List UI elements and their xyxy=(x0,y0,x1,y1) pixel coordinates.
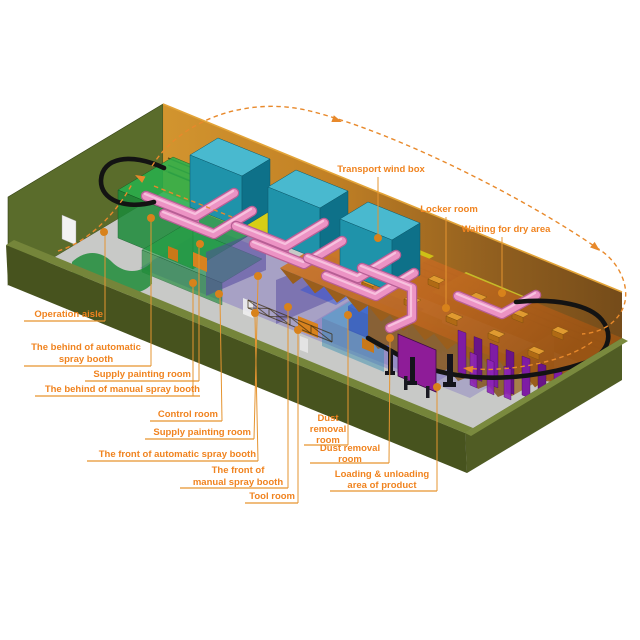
callout-dot-icon xyxy=(442,304,450,312)
callout-dot-icon xyxy=(215,290,223,298)
callout-text: Supply painting room xyxy=(93,369,191,380)
callout-text: Tool room xyxy=(249,491,295,502)
callout-text: The front of automatic spray booth xyxy=(99,449,256,460)
callout-dot-icon xyxy=(344,311,352,319)
callout-text: Control room xyxy=(158,409,218,420)
callout-dot-icon xyxy=(498,289,506,297)
callout-text: The behind of automaticspray booth xyxy=(31,342,141,365)
flow-arrow-icon xyxy=(590,242,602,254)
callout-dot-icon xyxy=(254,272,262,280)
callout-text: Supply painting room xyxy=(153,427,251,438)
callout-dot-icon xyxy=(196,240,204,248)
callout-dot-icon xyxy=(147,214,155,222)
callout-dot-icon xyxy=(284,303,292,311)
callout-dot-icon xyxy=(251,309,259,317)
callout-dot-icon xyxy=(374,234,382,242)
factory-layout-diagram: Operation aisleThe behind of automaticsp… xyxy=(0,0,640,640)
callout-text: The front ofmanual spray booth xyxy=(193,465,283,488)
callout-dot-icon xyxy=(100,228,108,236)
callout-dot-icon xyxy=(294,326,302,334)
callout-text: Operation aisle xyxy=(34,309,103,320)
callout-dot-icon xyxy=(189,279,197,287)
callout-dot-icon xyxy=(386,334,394,342)
callout-dot-icon xyxy=(433,383,441,391)
callout-text: Transport wind box xyxy=(337,164,425,175)
callout-text: Waiting for dry area xyxy=(462,224,552,235)
callout-text: Loading & unloadingarea of product xyxy=(335,469,430,491)
callout-text: The behind of manual spray booth xyxy=(45,384,200,395)
callout-text: Locker room xyxy=(420,204,478,215)
callout-text: Dust removalroom xyxy=(320,443,380,465)
